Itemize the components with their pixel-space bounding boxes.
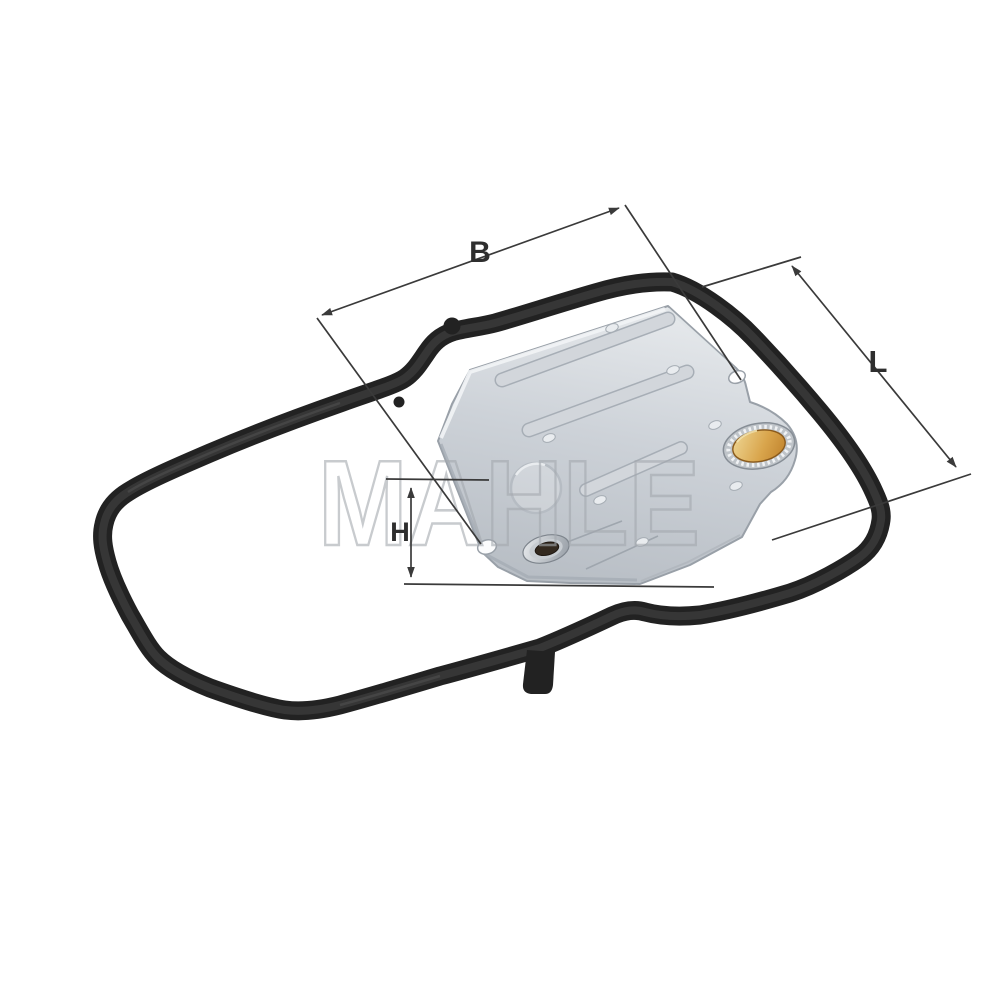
product-image: MAHLE B L H bbox=[0, 0, 1000, 1000]
gasket-step-nub bbox=[394, 397, 405, 408]
dimension-l-label: L bbox=[869, 344, 888, 379]
dimension-l-extension-top bbox=[702, 257, 801, 287]
dimension-h-reference-top bbox=[386, 479, 489, 480]
brand-watermark: MAHLE bbox=[318, 435, 700, 571]
dimension-b-label: B bbox=[469, 236, 491, 269]
gasket-bottom-tab bbox=[523, 650, 555, 694]
dimension-h-reference-bottom bbox=[404, 584, 714, 587]
dimension-h-label: H bbox=[390, 517, 410, 547]
gasket-top-bump bbox=[444, 318, 461, 335]
